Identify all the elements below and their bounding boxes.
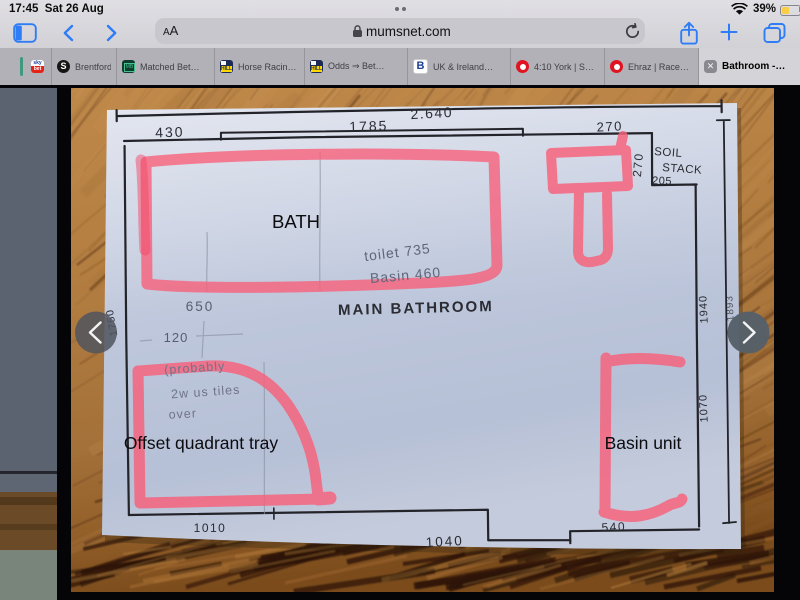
svg-text:1040: 1040 (425, 533, 464, 550)
svg-text:540: 540 (601, 519, 626, 534)
svg-text:270: 270 (630, 152, 646, 178)
svg-text:120: 120 (164, 330, 189, 345)
svg-text:2.640: 2.640 (410, 104, 453, 122)
svg-text:SOIL: SOIL (654, 146, 683, 160)
svg-text:205: 205 (652, 175, 672, 188)
svg-text:1010: 1010 (194, 521, 227, 535)
svg-text:over: over (168, 406, 197, 421)
svg-text:Basin unit: Basin unit (605, 433, 682, 453)
svg-text:1785: 1785 (349, 117, 389, 134)
svg-text:270: 270 (596, 118, 623, 134)
svg-text:BATH: BATH (272, 211, 320, 232)
svg-text:650: 650 (186, 299, 215, 314)
svg-text:1940: 1940 (697, 295, 710, 324)
svg-text:430: 430 (155, 123, 185, 140)
svg-text:Offset quadrant tray: Offset quadrant tray (124, 433, 279, 453)
svg-text:1070: 1070 (697, 394, 710, 423)
